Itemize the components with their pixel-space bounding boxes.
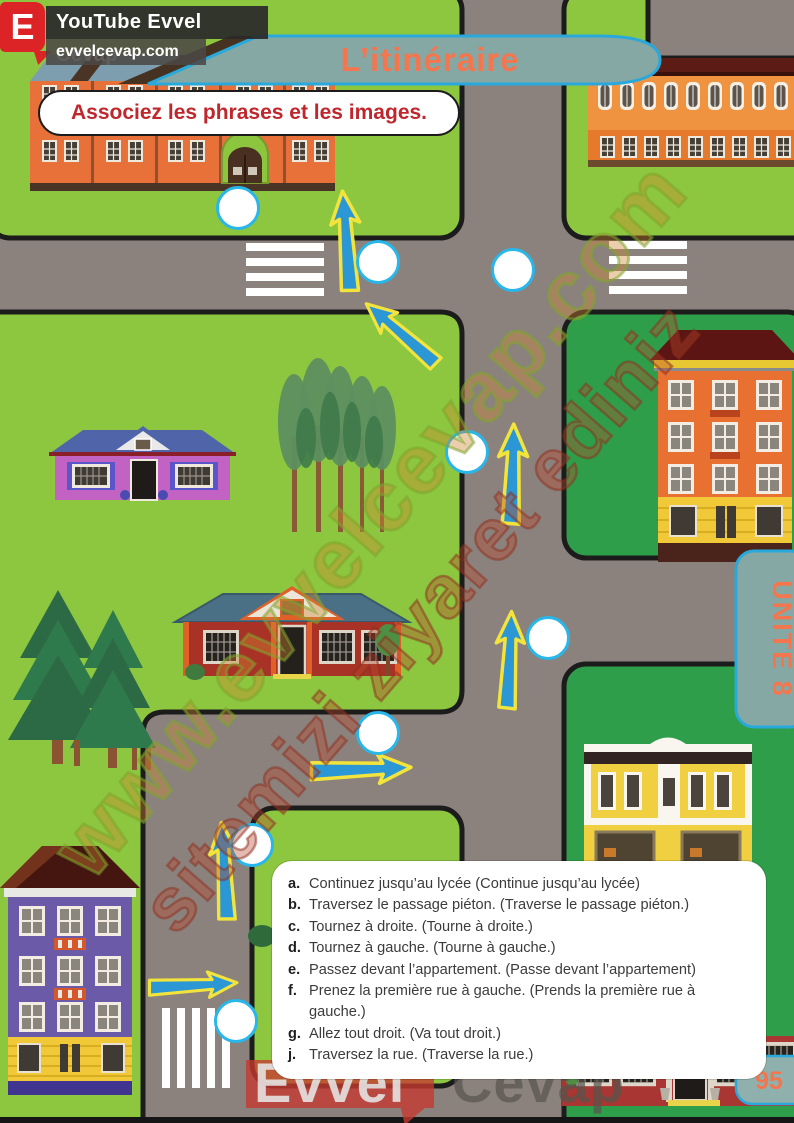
answer-circle[interactable] — [493, 250, 534, 291]
instruction-bubble: Associez les phrases et les images. — [38, 90, 460, 136]
phrase-letter: f. — [288, 981, 309, 1024]
answer-circle[interactable] — [447, 432, 488, 473]
channel-website-bar: evvelcevap.com — [46, 39, 206, 65]
answer-circle[interactable] — [218, 188, 259, 229]
phrase-list-box: a. Continuez jusqu’au lycée (Continue ju… — [272, 861, 766, 1079]
phrase-text: Traversez le passage piéton. (Traverse l… — [309, 895, 689, 916]
phrase-item: g. Allez tout droit. (Va tout droit.) — [288, 1024, 752, 1045]
phrase-item: d. Tournez à gauche. (Tourne à gauche.) — [288, 938, 752, 959]
phrase-item: b. Traversez le passage piéton. (Travers… — [288, 895, 752, 916]
answer-circle[interactable] — [358, 242, 399, 283]
worksheet-page: L’itinéraire UNITÉ 8 95 www.evvelcevap.c… — [0, 0, 794, 1123]
channel-logo-letter: E — [10, 6, 34, 48]
unit-tab-label: UNITÉ 8 — [767, 580, 794, 698]
phrase-text: Traversez la rue. (Traverse la rue.) — [309, 1045, 533, 1066]
phrase-text: Passez devant l’appartement. (Passe deva… — [309, 960, 696, 981]
answer-circle[interactable] — [528, 618, 569, 659]
phrase-letter: e. — [288, 960, 309, 981]
phrase-item: a. Continuez jusqu’au lycée (Continue ju… — [288, 874, 752, 895]
phrase-text: Allez tout droit. (Va tout droit.) — [309, 1024, 501, 1045]
unit-tab: UNITÉ 8 — [736, 551, 794, 727]
phrase-text: Continuez jusqu’au lycée (Continue jusqu… — [309, 874, 640, 895]
purple-apartment — [0, 846, 140, 1095]
channel-logo-badge: E — [0, 2, 45, 52]
answer-circle[interactable] — [216, 1001, 257, 1042]
orange-apartment — [650, 330, 794, 562]
instruction-text: Associez les phrases et les images. — [71, 101, 427, 125]
phrase-letter: b. — [288, 895, 309, 916]
road-stub-top-right — [648, 0, 794, 58]
phrase-letter: g. — [288, 1024, 309, 1045]
page-bottom-edge — [0, 1117, 794, 1123]
phrase-item: e. Passez devant l’appartement. (Passe d… — [288, 960, 752, 981]
channel-name-bar: YouTube Evvel Cevap — [46, 6, 268, 39]
lesson-title: L’itinéraire — [341, 41, 520, 78]
answer-circle[interactable] — [232, 825, 273, 866]
phrase-item: j. Traversez la rue. (Traverse la rue.) — [288, 1045, 752, 1066]
purple-house — [49, 426, 236, 500]
phrase-letter: c. — [288, 917, 309, 938]
phrase-text: Prenez la première rue à gauche. (Prends… — [309, 981, 752, 1024]
phrase-item: f. Prenez la première rue à gauche. (Pre… — [288, 981, 752, 1024]
phrase-letter: d. — [288, 938, 309, 959]
phrase-letter: j. — [288, 1045, 309, 1066]
phrase-item: c. Tournez à droite. (Tourne à droite.) — [288, 917, 752, 938]
yellow-building — [584, 738, 752, 881]
phrase-letter: a. — [288, 874, 309, 895]
phrase-text: Tournez à droite. (Tourne à droite.) — [309, 917, 533, 938]
answer-circle[interactable] — [358, 713, 399, 754]
phrase-text: Tournez à gauche. (Tourne à gauche.) — [309, 938, 556, 959]
